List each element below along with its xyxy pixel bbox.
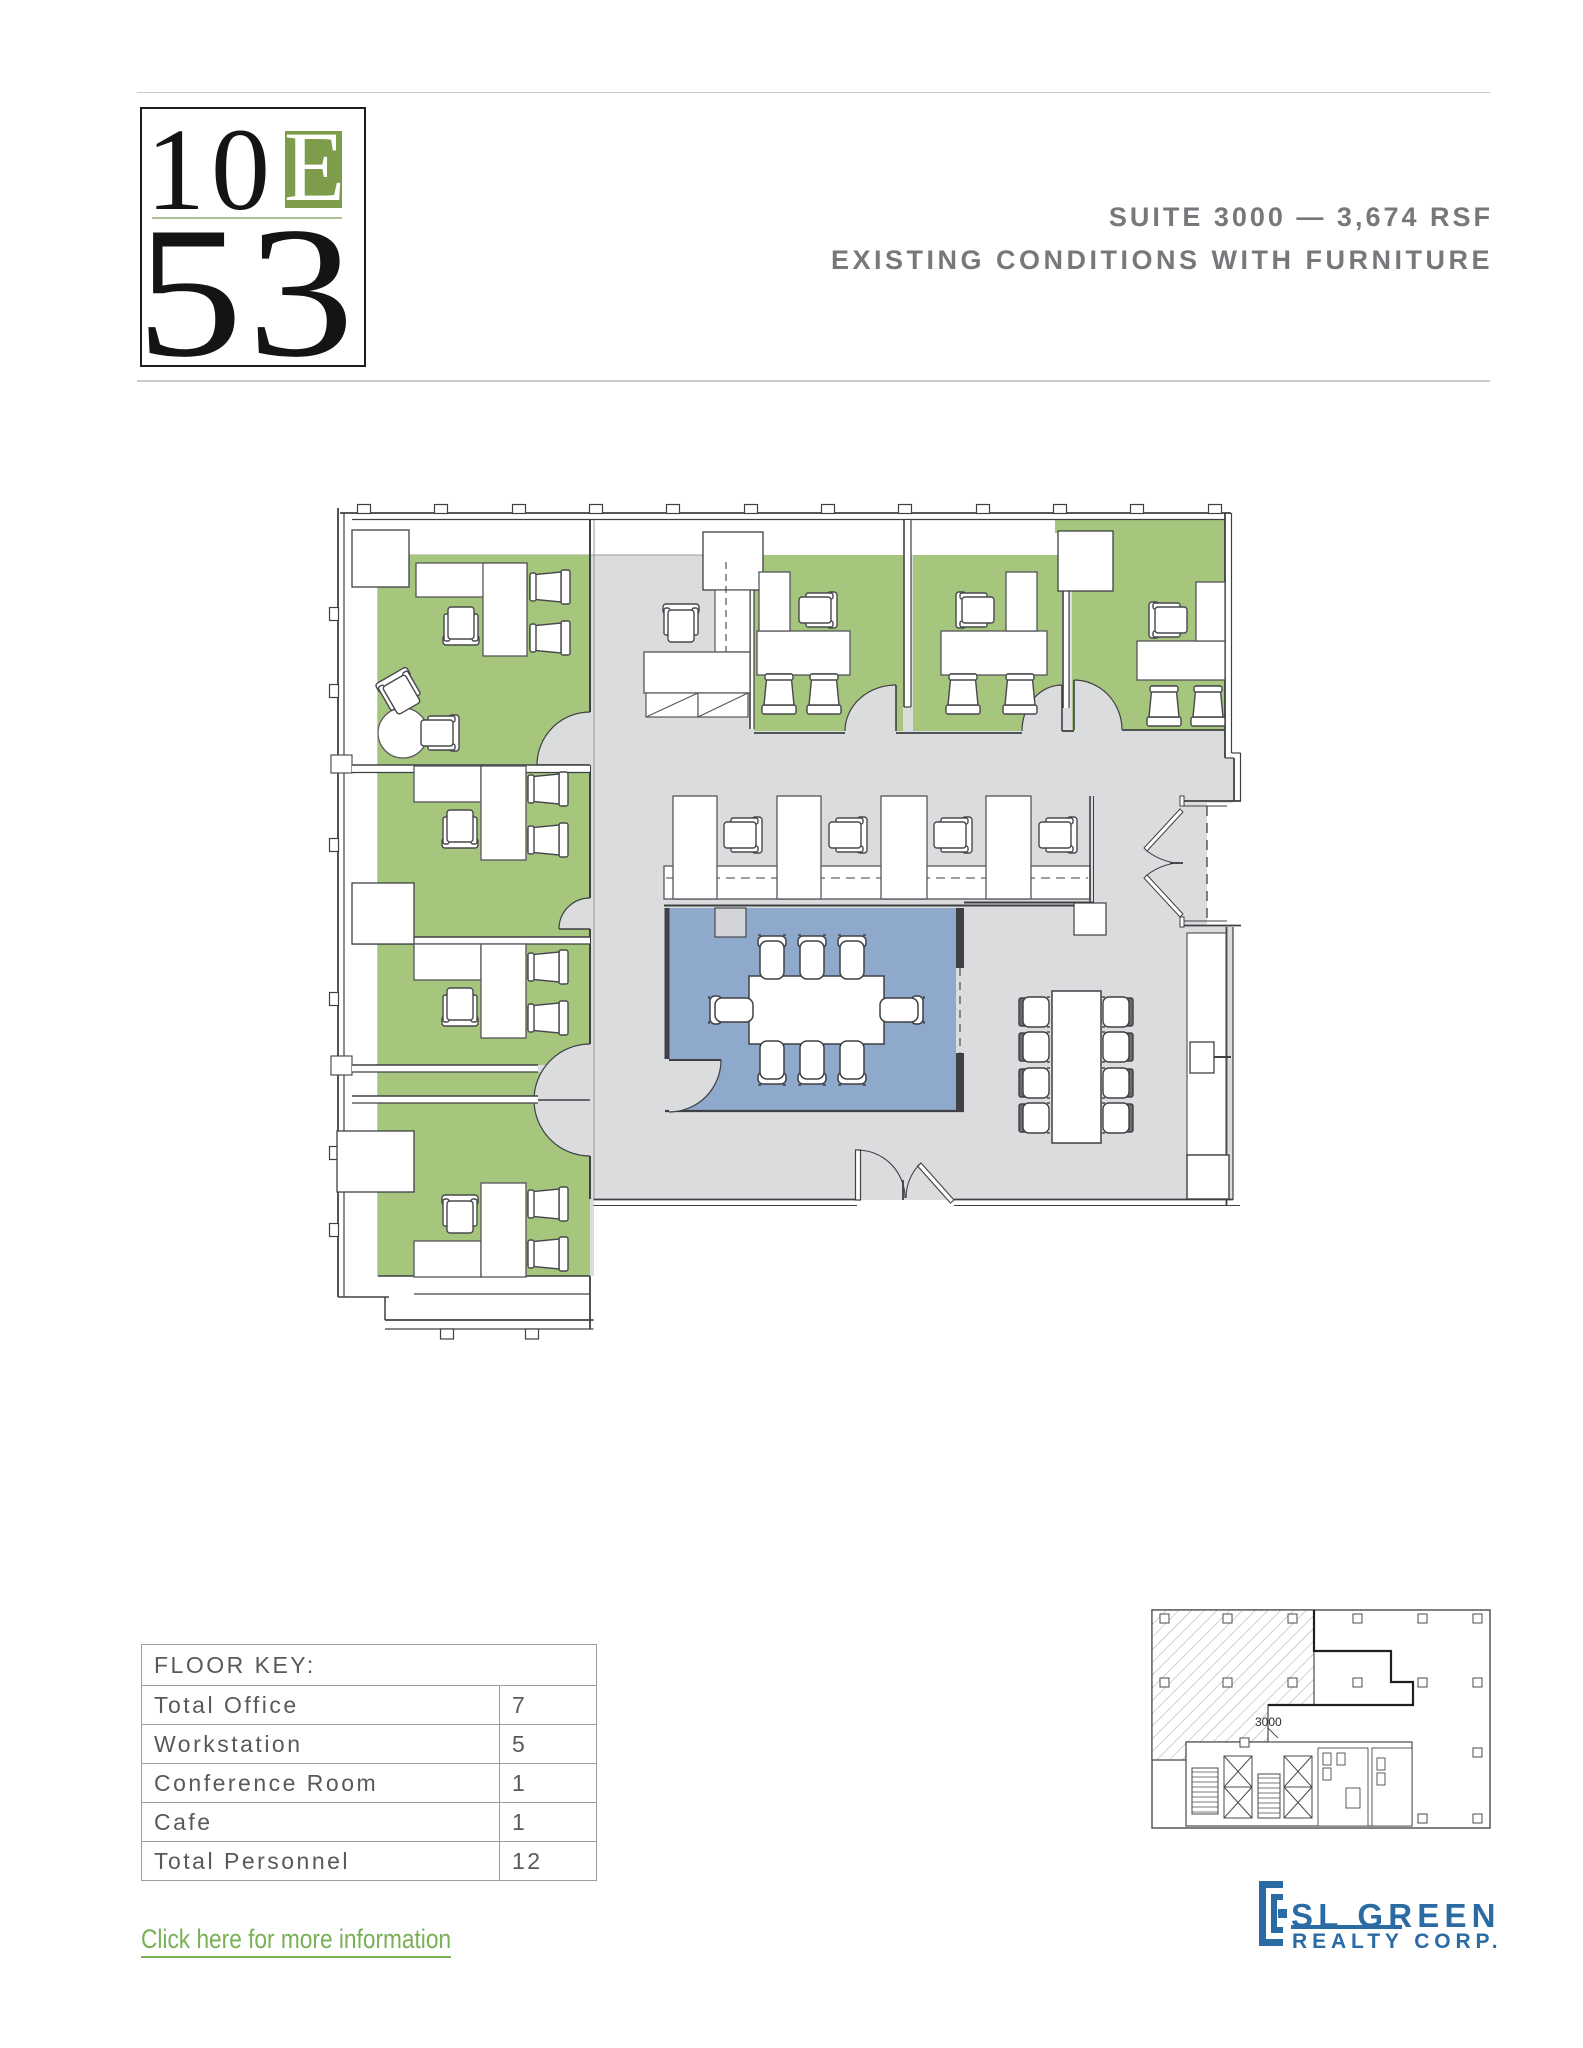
svg-text:3000: 3000 xyxy=(1255,1715,1282,1729)
